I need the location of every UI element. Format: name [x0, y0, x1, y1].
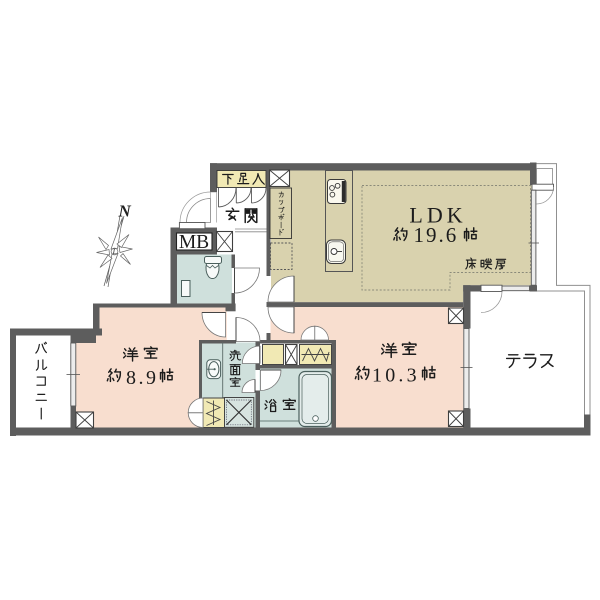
svg-text:N: N	[118, 202, 132, 221]
svg-text:19.6: 19.6	[414, 223, 459, 247]
svg-text:10.3: 10.3	[372, 365, 420, 387]
svg-text:MB: MB	[179, 232, 209, 253]
svg-text:8.9: 8.9	[126, 367, 159, 389]
